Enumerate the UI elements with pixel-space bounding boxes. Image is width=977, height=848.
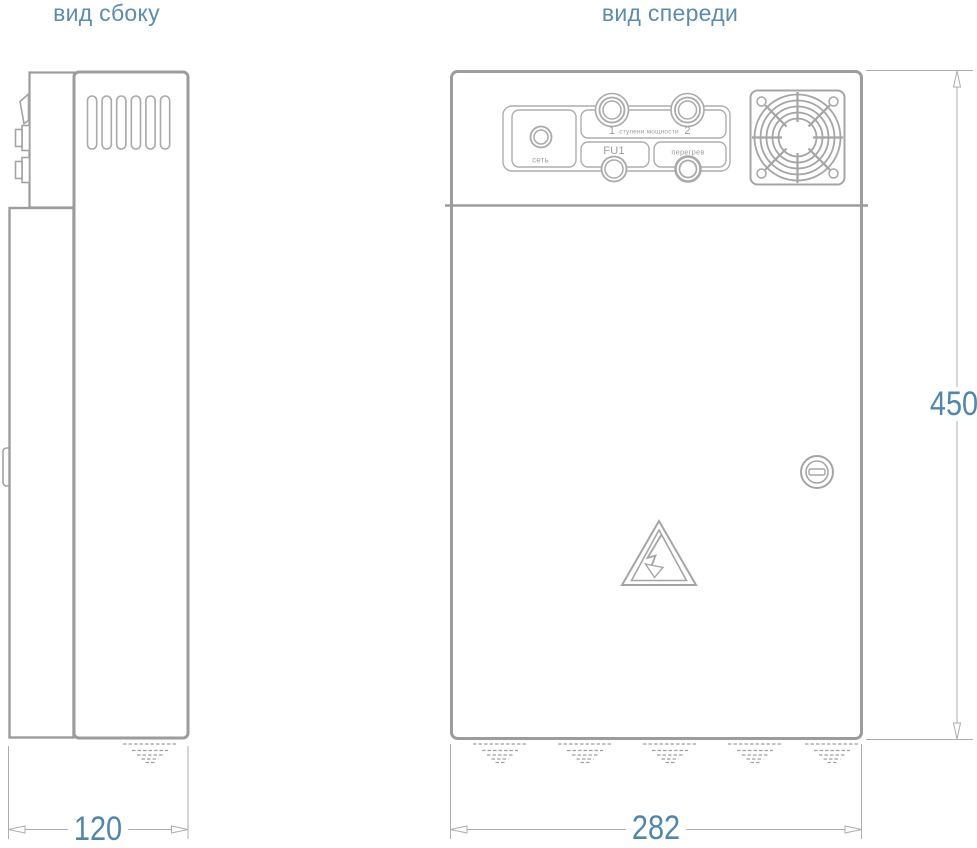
side-top-column-outline [30,73,75,208]
fan-grille-icon [751,91,845,185]
side-view-drawing [3,72,188,763]
ground-symbol [123,744,177,763]
stage-1-label: 1 [609,125,615,137]
overheat-label: перегрев [671,147,704,156]
stage1-indicator-lamp [596,94,629,127]
front-view-title: вид спереди [588,0,752,27]
front-view-drawing [445,72,868,763]
arrowhead-left [9,826,26,833]
stages-caption: ступени мощности [619,128,678,135]
arrowhead-right [172,826,189,833]
overheat-indicator-lamp [676,157,701,182]
technical-drawing: вид сбоку вид спереди сеть 1 ступени мощ… [0,0,977,840]
arrowhead-right [845,826,862,833]
dimension-450-label: 450 [927,387,977,421]
power-indicator-lamp [531,127,552,148]
arrowhead-up [954,71,961,87]
power-lamp-label: сеть [532,155,549,164]
stage-2-label: 2 [684,125,690,137]
stage2-indicator-lamp [671,94,704,127]
side-body-outline [74,72,188,738]
arrowhead-down [954,723,961,739]
side-switch-lever [20,94,29,124]
side-connectors [16,126,30,183]
arrowhead-left [451,826,468,833]
front-ground-symbols [473,744,859,763]
drawing-canvas [0,0,977,840]
fuse-label: FU1 [603,145,624,157]
fuse-indicator-lamp [602,157,627,182]
lock-icon [801,456,833,488]
side-view-title: вид сбоку [26,0,187,27]
dimension-120-label: 120 [68,812,128,846]
side-door-outline [10,208,74,738]
